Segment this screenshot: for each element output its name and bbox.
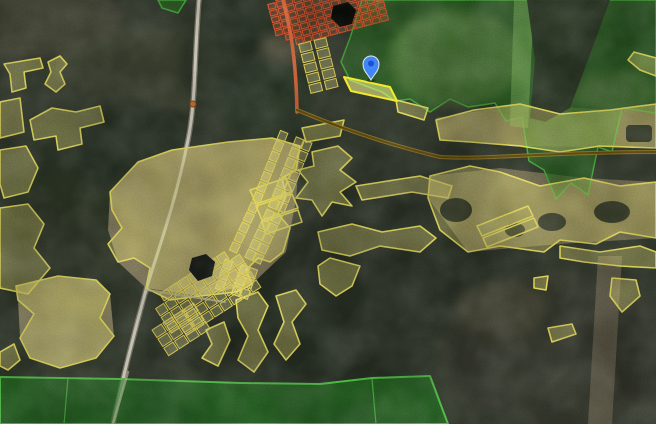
satellite-map [0,0,656,424]
map-canvas[interactable] [0,0,656,424]
satellite-grain [0,0,656,424]
map-layers [0,0,656,424]
